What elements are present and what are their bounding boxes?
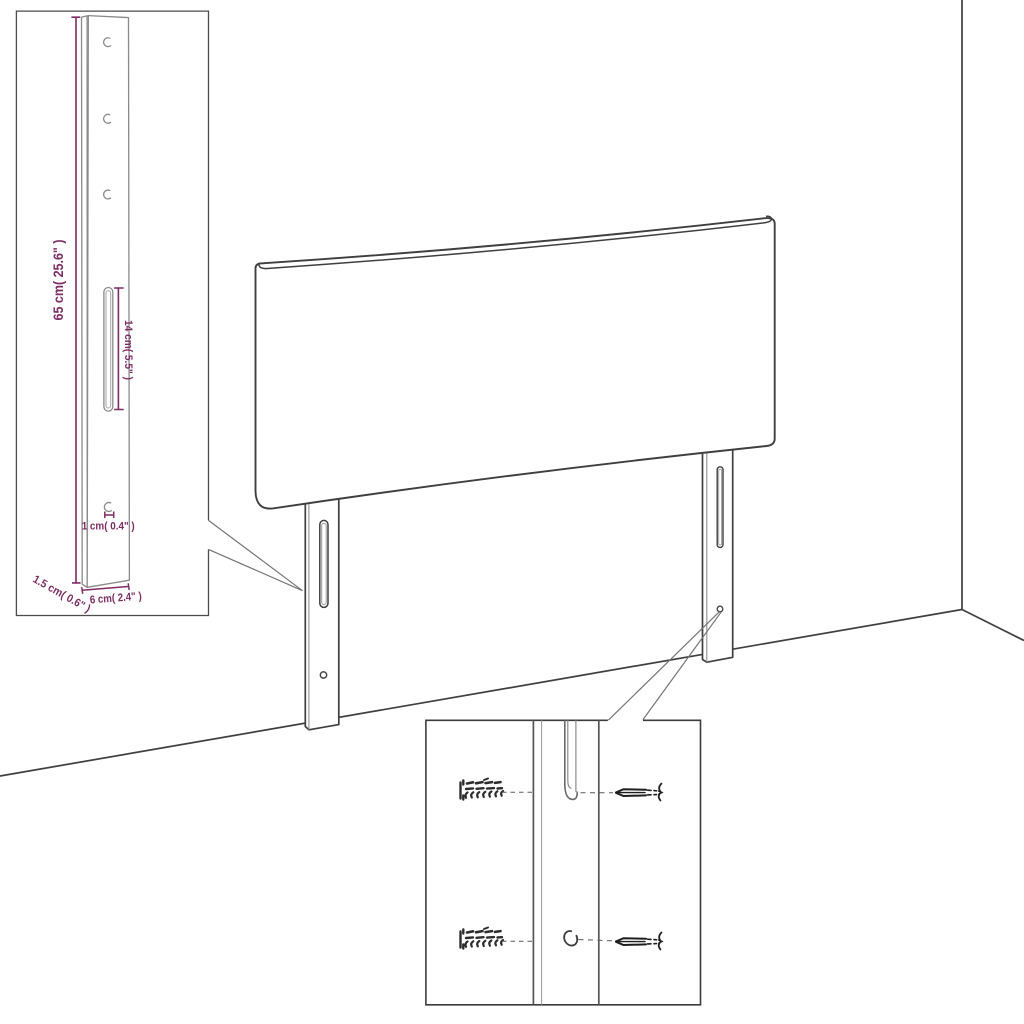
svg-text:65 cm( 25.6" ): 65 cm( 25.6" ) — [50, 240, 66, 321]
svg-text:14 cm( 5.5" ): 14 cm( 5.5" ) — [122, 320, 134, 380]
svg-text:1 cm( 0.4" ): 1 cm( 0.4" ) — [82, 521, 135, 533]
